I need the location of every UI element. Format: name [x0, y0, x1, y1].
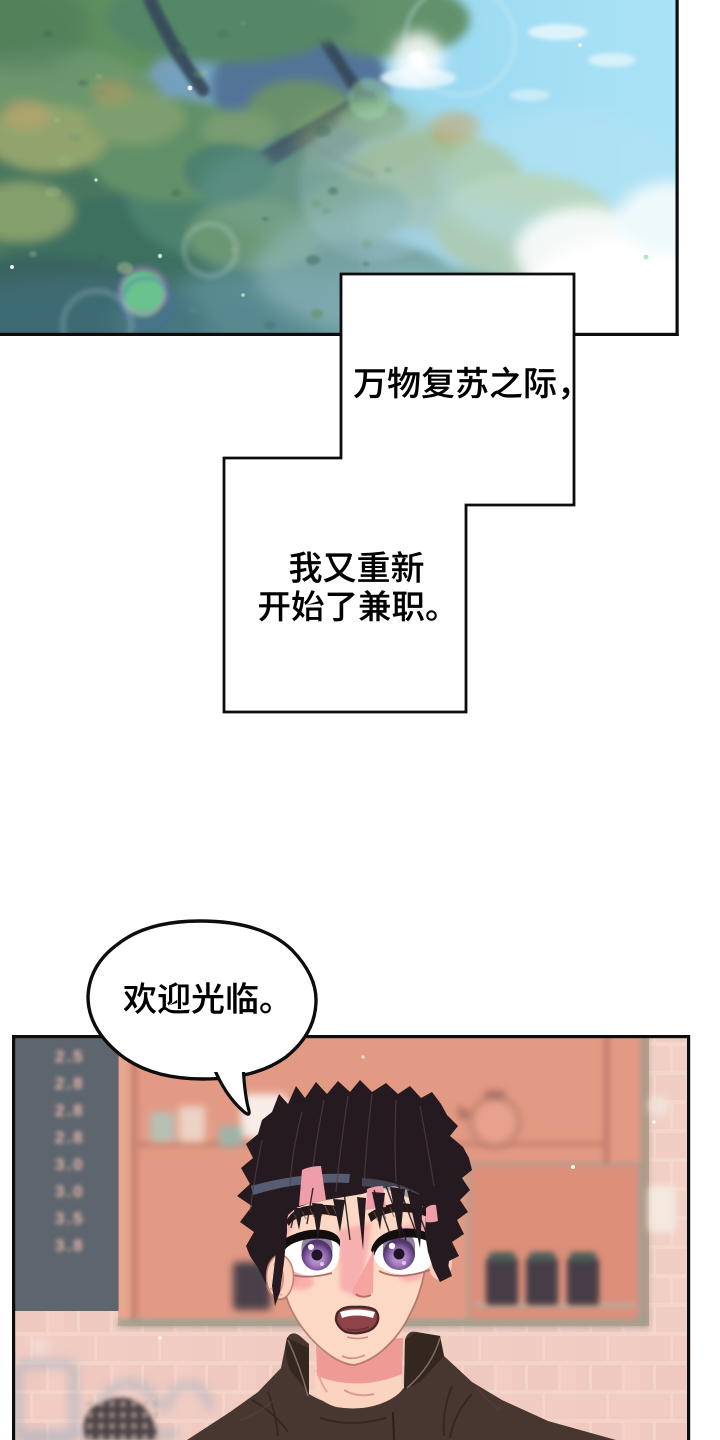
svg-text:2.8: 2.8: [55, 1128, 85, 1147]
svg-text:3.5: 3.5: [55, 1209, 85, 1228]
svg-text:3.8: 3.8: [55, 1236, 85, 1255]
svg-text:2.5: 2.5: [55, 1047, 85, 1066]
svg-text:2.8: 2.8: [55, 1101, 85, 1120]
svg-text:2.8: 2.8: [55, 1074, 85, 1093]
svg-text:3.0: 3.0: [55, 1155, 85, 1174]
svg-text:3.0: 3.0: [55, 1182, 85, 1201]
